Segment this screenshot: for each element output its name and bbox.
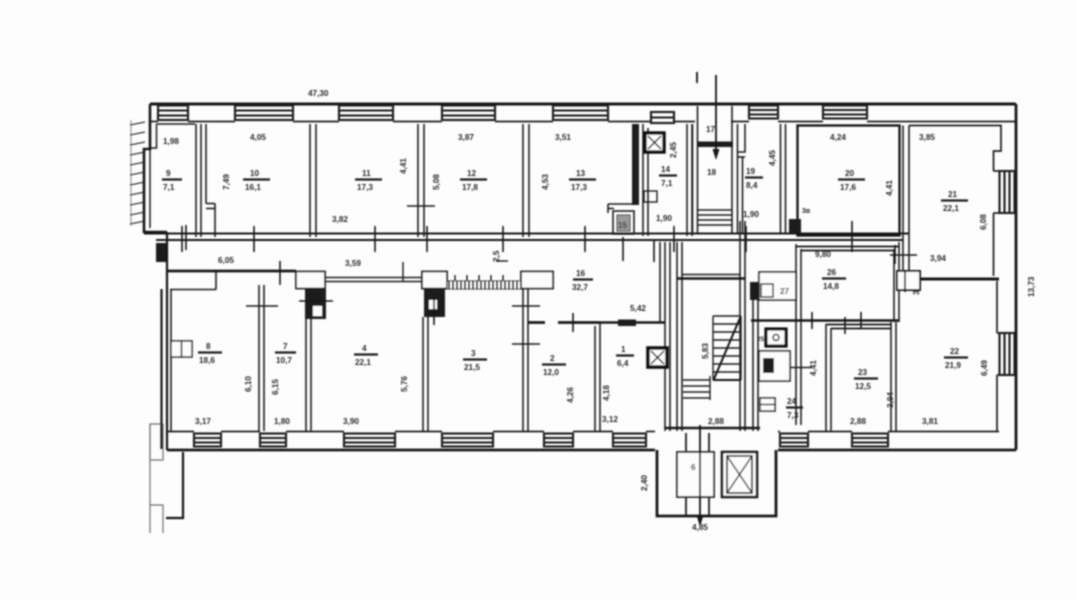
svg-text:15: 15	[618, 221, 628, 230]
svg-text:8: 8	[206, 342, 211, 351]
svg-text:14: 14	[661, 165, 671, 174]
svg-text:2,88: 2,88	[708, 417, 724, 426]
svg-text:4: 4	[362, 344, 367, 353]
svg-text:7,3: 7,3	[787, 411, 799, 420]
svg-text:5,76: 5,76	[400, 376, 409, 392]
svg-text:3: 3	[471, 349, 476, 358]
svg-text:4,53: 4,53	[541, 174, 550, 190]
svg-text:12,0: 12,0	[543, 368, 559, 377]
svg-text:21,5: 21,5	[464, 363, 480, 372]
svg-text:6,49: 6,49	[980, 360, 989, 376]
svg-text:16: 16	[576, 269, 586, 278]
svg-text:9: 9	[166, 169, 171, 178]
svg-text:3в: 3в	[802, 208, 811, 215]
svg-text:4,85: 4,85	[692, 523, 708, 532]
svg-text:6,08: 6,08	[979, 214, 988, 230]
svg-text:14,8: 14,8	[823, 282, 839, 291]
svg-text:22: 22	[950, 347, 960, 356]
svg-text:20: 20	[845, 169, 855, 178]
svg-text:4,24: 4,24	[830, 133, 846, 142]
svg-text:17,8: 17,8	[462, 183, 478, 192]
svg-text:3,51: 3,51	[555, 133, 571, 142]
svg-text:5,83: 5,83	[701, 343, 710, 359]
svg-text:6: 6	[691, 463, 696, 472]
svg-text:21,9: 21,9	[945, 361, 961, 370]
svg-text:3,17: 3,17	[195, 417, 211, 426]
svg-text:11: 11	[362, 169, 371, 178]
svg-text:4,41: 4,41	[399, 158, 408, 174]
svg-text:1,80: 1,80	[274, 417, 290, 426]
svg-text:10: 10	[250, 169, 260, 178]
svg-text:12: 12	[467, 169, 477, 178]
svg-text:4,41: 4,41	[885, 180, 894, 196]
svg-text:22,1: 22,1	[355, 358, 371, 367]
svg-text:3,59: 3,59	[345, 259, 361, 268]
svg-text:1: 1	[621, 345, 626, 354]
svg-text:3,90: 3,90	[343, 417, 359, 426]
svg-text:3,94: 3,94	[930, 254, 946, 263]
svg-text:3,81: 3,81	[922, 417, 938, 426]
svg-text:4,45: 4,45	[768, 150, 777, 166]
svg-text:4,05: 4,05	[250, 133, 266, 142]
svg-text:6,15: 6,15	[271, 379, 280, 395]
svg-text:2,40: 2,40	[640, 475, 649, 491]
svg-text:3,85: 3,85	[919, 133, 935, 142]
svg-text:17,6: 17,6	[840, 183, 856, 192]
svg-text:10,7: 10,7	[276, 356, 292, 365]
svg-text:6,05: 6,05	[218, 256, 234, 265]
svg-text:32,7: 32,7	[572, 283, 588, 292]
svg-text:8,4: 8,4	[746, 181, 758, 190]
svg-text:27: 27	[780, 287, 790, 296]
svg-text:17,3: 17,3	[357, 183, 373, 192]
svg-text:4,41: 4,41	[809, 360, 818, 376]
svg-text:21: 21	[948, 190, 958, 199]
svg-text:13: 13	[576, 169, 586, 178]
svg-text:7,49: 7,49	[222, 174, 231, 190]
svg-text:6,10: 6,10	[244, 376, 253, 392]
svg-text:13,73: 13,73	[1027, 276, 1036, 297]
svg-text:3,82: 3,82	[332, 215, 348, 224]
svg-text:1,90: 1,90	[656, 214, 672, 223]
svg-text:7,1: 7,1	[661, 179, 673, 188]
svg-text:25: 25	[757, 336, 765, 343]
svg-text:47,30: 47,30	[308, 89, 329, 98]
svg-text:1,98: 1,98	[163, 137, 179, 146]
svg-text:3,12: 3,12	[602, 415, 618, 424]
svg-text:23: 23	[858, 368, 868, 377]
svg-text:3,87: 3,87	[458, 133, 474, 142]
svg-text:4,26: 4,26	[566, 387, 575, 403]
svg-text:2,88: 2,88	[850, 417, 866, 426]
svg-text:2: 2	[550, 354, 555, 363]
svg-text:19: 19	[746, 167, 756, 176]
svg-text:3,94: 3,94	[886, 392, 895, 408]
svg-text:7,1: 7,1	[163, 183, 175, 192]
svg-text:9,80: 9,80	[815, 250, 831, 259]
svg-text:12,5: 12,5	[855, 382, 871, 391]
svg-text:17,3: 17,3	[571, 183, 587, 192]
svg-text:2,5: 2,5	[492, 250, 501, 262]
svg-text:2,45: 2,45	[669, 142, 678, 158]
svg-text:26: 26	[827, 268, 837, 277]
svg-text:24: 24	[787, 397, 797, 406]
svg-text:16,1: 16,1	[245, 183, 261, 192]
svg-text:4,18: 4,18	[602, 385, 611, 401]
svg-text:5,08: 5,08	[432, 174, 441, 190]
svg-text:7: 7	[283, 342, 288, 351]
svg-text:18,6: 18,6	[199, 356, 215, 365]
svg-text:17: 17	[706, 125, 716, 134]
svg-text:5,42: 5,42	[630, 304, 646, 313]
svg-text:22,1: 22,1	[943, 204, 959, 213]
svg-text:1,90: 1,90	[743, 210, 759, 219]
svg-text:6,4: 6,4	[617, 359, 629, 368]
svg-text:18: 18	[707, 168, 717, 177]
